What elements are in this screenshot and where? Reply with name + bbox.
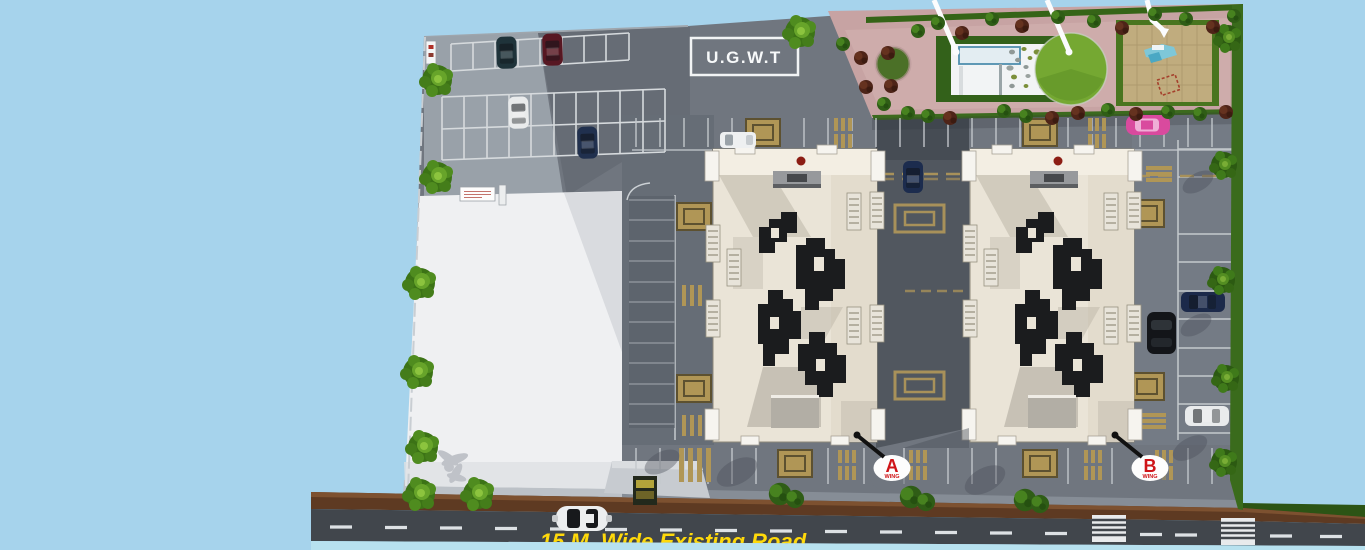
svg-text:WING: WING: [885, 474, 900, 480]
svg-text:B: B: [1144, 456, 1157, 476]
svg-text:A: A: [886, 456, 899, 476]
svg-text:U.G.W.T: U.G.W.T: [706, 48, 782, 67]
svg-text:WING: WING: [1143, 474, 1158, 480]
